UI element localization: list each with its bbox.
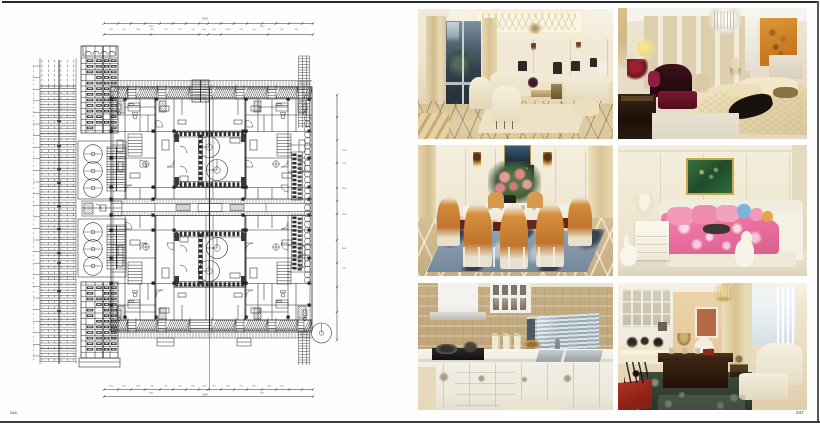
svg-text:900: 900 [150,29,154,31]
svg-text:9240: 9240 [202,393,208,396]
svg-text:420: 420 [178,386,182,388]
svg-text:900: 900 [280,386,284,388]
svg-text:1160: 1160 [202,386,207,388]
svg-text:420: 420 [164,29,168,31]
svg-text:960: 960 [212,29,216,31]
svg-text:1160: 1160 [136,29,141,31]
svg-text:4940: 4940 [149,26,154,28]
svg-text:1160: 1160 [136,386,141,388]
svg-text:1100: 1100 [267,386,272,388]
svg-text:420: 420 [164,386,168,388]
svg-text:960: 960 [212,386,216,388]
svg-text:900: 900 [191,29,195,31]
svg-text:900: 900 [150,386,154,388]
svg-text:1240: 1240 [109,29,114,31]
svg-text:1400: 1400 [342,214,347,216]
svg-text:4940: 4940 [260,26,265,28]
svg-text:9240: 9240 [202,17,208,21]
svg-text:900: 900 [280,29,284,31]
svg-text:960: 960 [122,29,126,31]
svg-text:1500: 1500 [342,150,347,152]
svg-text:900: 900 [342,163,346,165]
svg-text:900: 900 [252,29,256,31]
svg-text:1240: 1240 [109,386,114,388]
svg-text:900: 900 [342,268,346,270]
svg-text:1100: 1100 [267,29,272,31]
svg-text:760: 760 [239,386,243,388]
svg-text:960: 960 [122,386,126,388]
svg-text:900: 900 [252,386,256,388]
svg-text:1160: 1160 [202,29,207,31]
svg-text:760: 760 [294,29,298,31]
svg-text:900: 900 [191,386,195,388]
svg-text:4940: 4940 [260,393,265,395]
svg-text:2660: 2660 [342,188,347,190]
svg-text:420: 420 [178,29,182,31]
svg-text:2660: 2660 [342,248,347,250]
svg-text:760: 760 [239,29,243,31]
svg-text:1240: 1240 [226,386,231,388]
svg-text:1240: 1240 [226,29,231,31]
svg-text:4940: 4940 [149,393,154,395]
